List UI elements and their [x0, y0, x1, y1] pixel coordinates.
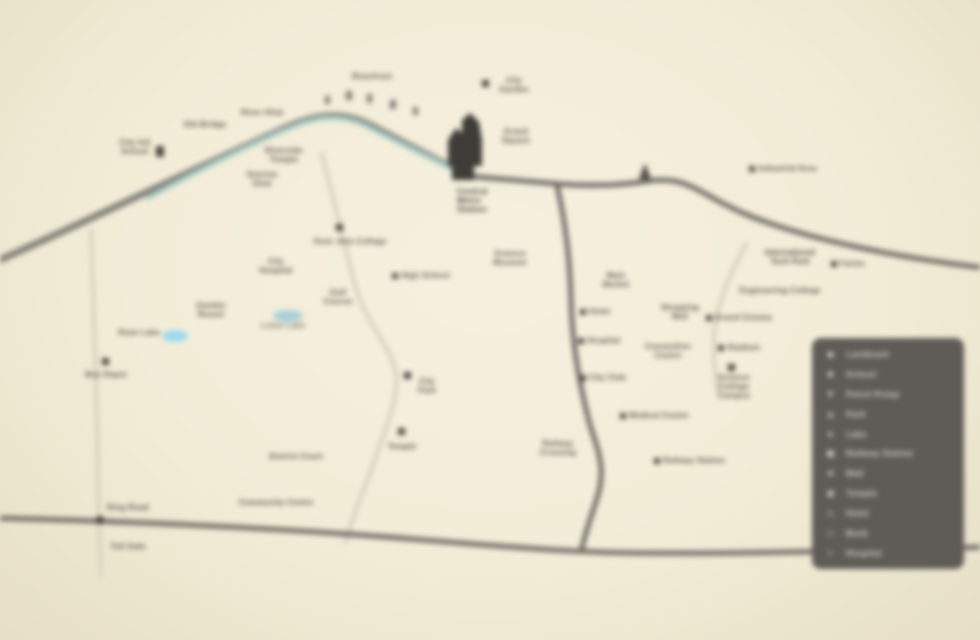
legend-label: Park	[846, 409, 866, 419]
map-label: Toll Gate	[110, 542, 145, 551]
legend-item: □ Bank	[824, 528, 952, 538]
garden-poi-icon	[482, 80, 489, 87]
map-label: Bus Depot	[85, 370, 127, 379]
site-base-icon	[452, 166, 474, 180]
poi-icon	[580, 375, 586, 381]
legend-label: Petrol Pump	[846, 389, 899, 399]
map-label: High School	[401, 271, 450, 280]
map-label: City Park	[418, 377, 436, 395]
school-poi-icon	[156, 146, 164, 157]
railway-station-icon: ▣	[824, 448, 837, 458]
legend-label: School	[846, 369, 876, 379]
bank-icon: □	[824, 528, 837, 538]
legend-item: ▲ Park	[824, 409, 952, 419]
poi-icon	[578, 338, 584, 344]
blurred-map-layer: City Intl School Old Bridge River Ghat R…	[0, 0, 980, 640]
map-poi: Stadium	[718, 343, 760, 352]
legend-item: ● Lake	[824, 429, 952, 439]
hospital-icon: +	[824, 548, 837, 558]
map-poi: City Club	[580, 373, 626, 382]
poi-icon	[718, 345, 724, 351]
map-label: Engineering College	[739, 286, 820, 295]
map-label: International Tech Park	[765, 248, 816, 266]
road-center-diagonal	[321, 152, 397, 544]
map-label: Railway Station	[663, 456, 725, 465]
map-label: Lotus Lake	[261, 321, 305, 330]
lake-icon: ●	[824, 429, 837, 439]
map-label: Rose Lake	[118, 328, 160, 337]
poi-icon	[706, 315, 712, 321]
pond-west	[162, 330, 188, 342]
map-poi: Hospital	[578, 336, 620, 345]
road-s-curve	[557, 185, 601, 553]
legend-item: ★ Mall	[824, 468, 952, 478]
legend-label: Landmark	[846, 349, 889, 359]
riverbank-trees-icons	[325, 91, 418, 115]
map-label: Hotel	[589, 307, 610, 316]
poi-icon	[654, 458, 660, 464]
map-label: Hospital	[587, 336, 620, 345]
map-label: Golf Course	[324, 288, 353, 306]
location-map: City Intl School Old Bridge River Ghat R…	[0, 0, 980, 640]
map-label: Sunrise Ghat	[247, 170, 278, 188]
petrol-pump-icon: ▼	[824, 389, 837, 399]
map-poi: High School	[392, 271, 450, 280]
map-label: City Club	[589, 373, 626, 382]
poi-icon	[580, 309, 586, 315]
bus-depot-poi-icon	[102, 358, 109, 365]
junction-marker-icon	[96, 516, 104, 524]
legend-item: ◉ Temple	[824, 488, 952, 498]
hotel-icon: ◇	[824, 508, 837, 518]
site-building-icon	[448, 113, 482, 166]
legend-item: ▣ Railway Station	[824, 448, 952, 458]
map-label: Stadium	[727, 343, 760, 352]
map-label: Garden Resort	[196, 301, 225, 319]
poi-icon	[831, 261, 837, 267]
map-label: City Intl School	[119, 138, 150, 156]
map-label: Science College Campus	[718, 373, 751, 400]
legend-item: ◇ Hotel	[824, 508, 952, 518]
river-water	[148, 118, 464, 198]
legend-label: Bank	[846, 528, 868, 538]
legend-label: Hotel	[846, 508, 869, 518]
map-label: Industrial Area	[758, 164, 817, 173]
site-label: Central Metro Station	[457, 187, 488, 214]
map-label: Convention Centre	[645, 342, 691, 360]
temple-poi-icon	[398, 428, 405, 435]
legend-label: Temple	[846, 488, 877, 498]
map-label: Riverside Temple	[265, 146, 303, 164]
map-label: Farms	[840, 259, 865, 268]
legend-label: Hospital	[846, 548, 882, 558]
temple-icon	[639, 163, 651, 179]
poi-icon	[620, 413, 626, 419]
legend-label: Mall	[846, 468, 864, 478]
map-poi: Railway Station	[654, 456, 725, 465]
map-legend: ◆ Landmark ■ School ▼ Petrol Pump ▲ Park…	[812, 338, 964, 569]
park-icon: ▲	[824, 409, 837, 419]
landmark-icon: ◆	[824, 349, 837, 359]
map-label: City Hospital	[259, 257, 292, 275]
map-label: River Ghat	[241, 108, 283, 117]
legend-label: Railway Station	[846, 448, 913, 458]
map-label: Community Centre	[239, 498, 314, 507]
college-poi-icon	[336, 224, 343, 231]
map-label: Grand Square	[502, 127, 530, 145]
poi-icon	[392, 273, 398, 279]
map-poi: Industrial Area	[749, 164, 817, 173]
map-poi: Medical Centre	[620, 411, 689, 420]
map-label: Science Museum	[493, 249, 527, 267]
poi-icon	[749, 166, 755, 172]
map-label: Ring Road	[107, 503, 149, 512]
map-poi: Farms	[831, 259, 865, 268]
map-label: Railway Crossing	[540, 439, 576, 457]
campus-poi-icon	[728, 364, 735, 371]
map-label: Grand Cinema	[715, 313, 772, 322]
map-label: Old Bridge	[184, 120, 227, 129]
map-label: Govt. Arts College	[313, 237, 386, 246]
map-poi: Grand Cinema	[706, 313, 772, 322]
legend-item: ▼ Petrol Pump	[824, 389, 952, 399]
map-label: Shopping Mall	[661, 303, 699, 321]
legend-item: ◆ Landmark	[824, 349, 952, 359]
legend-item: ■ School	[824, 369, 952, 379]
map-poi: Ring Road	[107, 503, 149, 512]
map-label: Riverfront	[352, 72, 392, 81]
park-poi-icon	[404, 372, 411, 379]
map-label: Temple	[388, 442, 417, 451]
river-bank	[0, 116, 466, 262]
legend-item: + Hospital	[824, 548, 952, 558]
map-label: Medical Centre	[629, 411, 689, 420]
road-left-vertical	[91, 229, 101, 577]
school-icon: ■	[824, 369, 837, 379]
map-label: District Court	[269, 452, 323, 461]
temple-icon: ◉	[824, 488, 837, 498]
road-main-east	[466, 176, 980, 268]
mall-icon: ★	[824, 468, 837, 478]
map-label: Main Market	[603, 271, 630, 289]
map-canvas: City Intl School Old Bridge River Ghat R…	[0, 0, 980, 640]
legend-label: Lake	[846, 429, 867, 439]
map-poi: Hotel	[580, 307, 610, 316]
map-label: City Garden	[499, 76, 528, 94]
